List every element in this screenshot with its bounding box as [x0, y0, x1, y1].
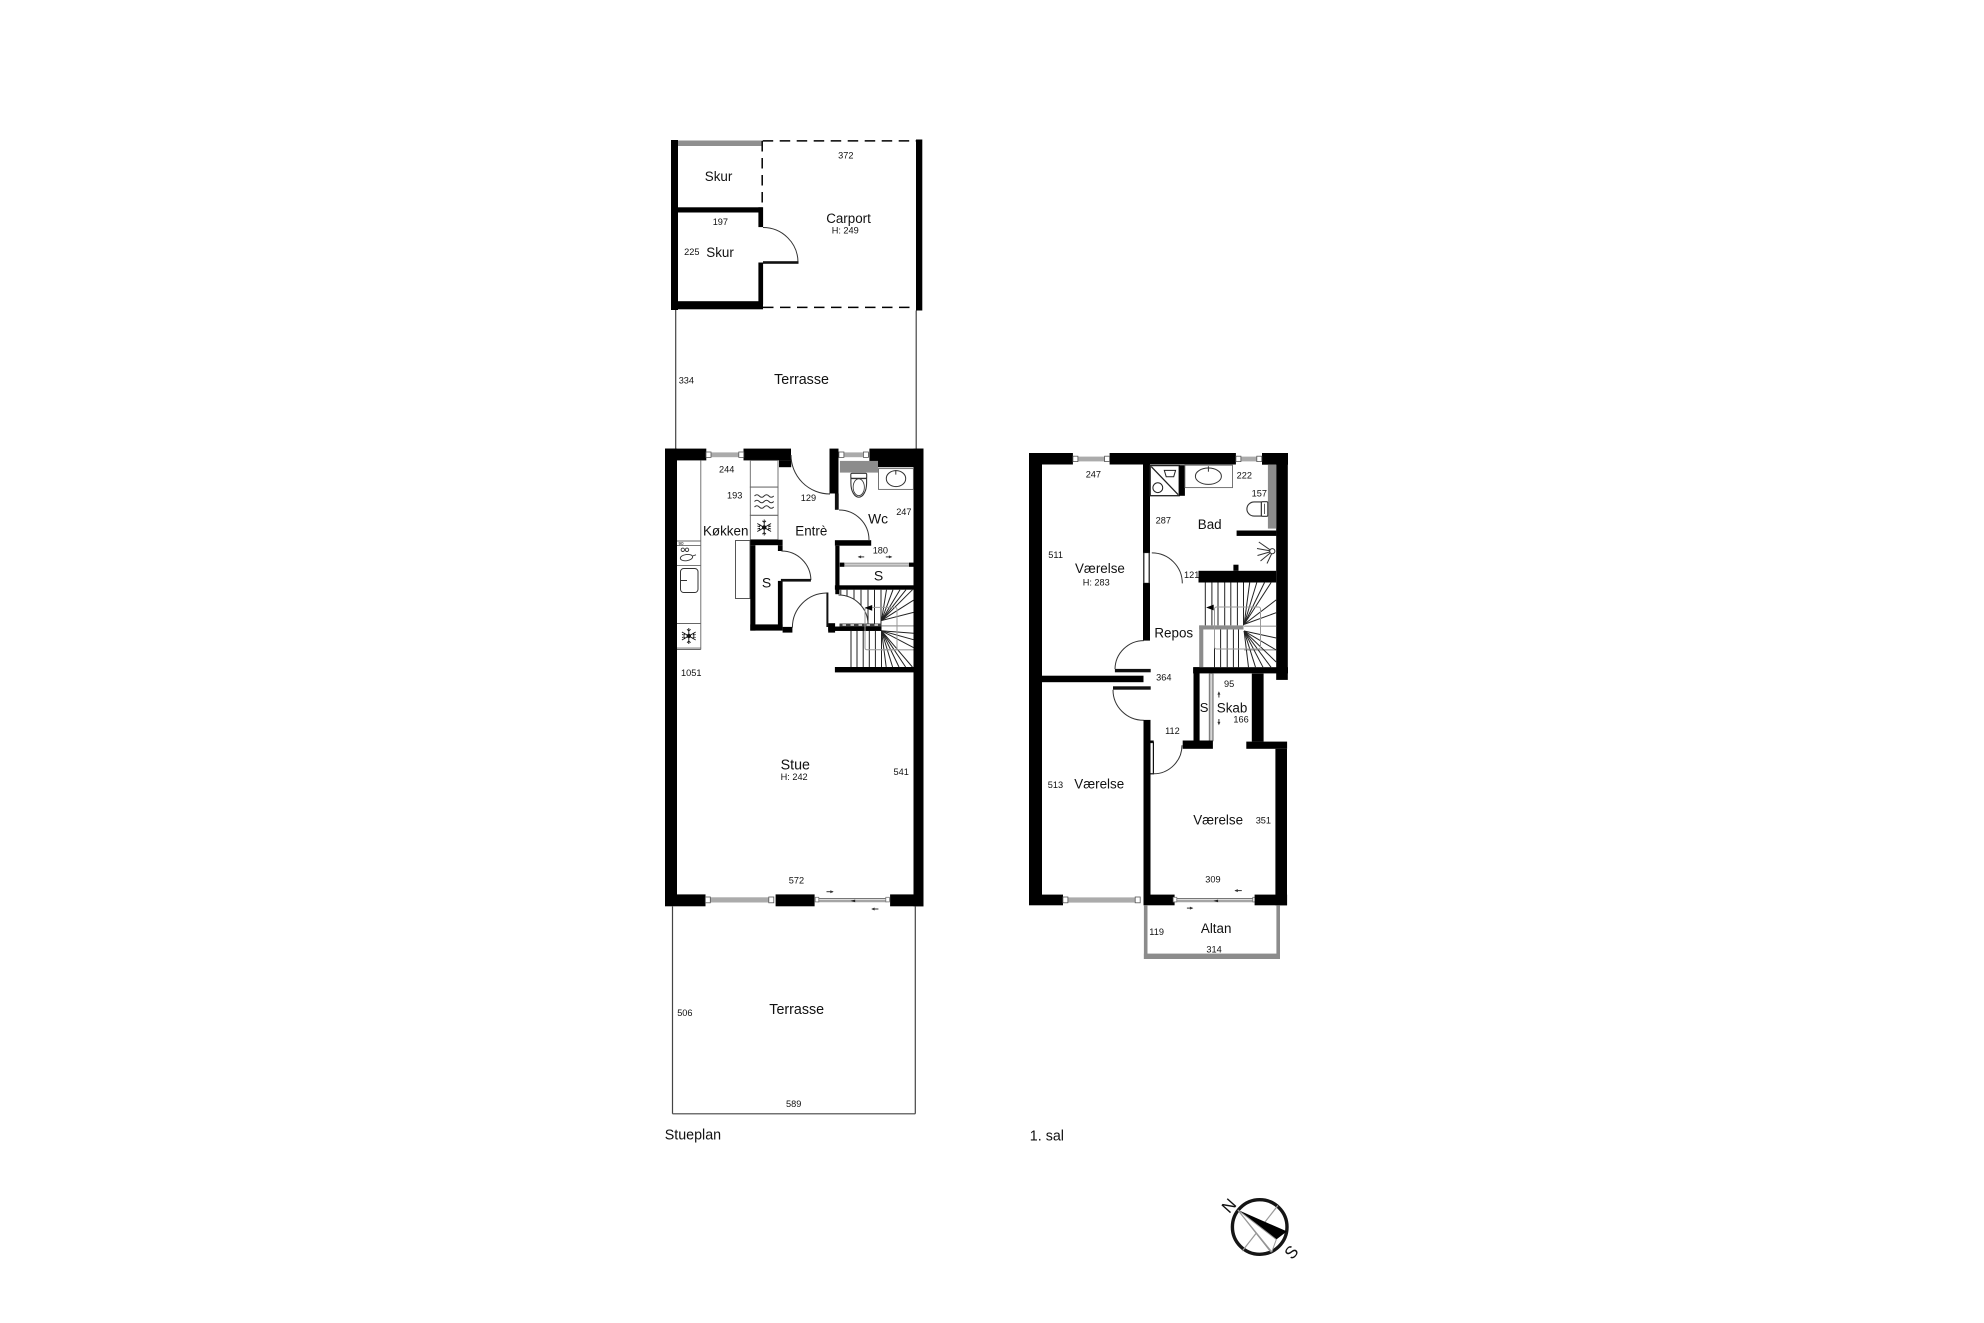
svg-text:247: 247 [1086, 470, 1101, 480]
svg-text:Værelse: Værelse [1075, 561, 1125, 576]
svg-text:S: S [1200, 700, 1209, 715]
svg-text:247: 247 [896, 507, 911, 517]
svg-text:372: 372 [838, 151, 853, 161]
svg-text:193: 193 [727, 491, 742, 501]
svg-text:334: 334 [679, 376, 694, 386]
svg-text:Entrè: Entrè [795, 524, 827, 539]
svg-text:513: 513 [1048, 780, 1063, 790]
svg-text:H: 249: H: 249 [832, 225, 859, 235]
svg-text:119: 119 [1149, 927, 1164, 937]
svg-text:H: 242: H: 242 [781, 772, 808, 782]
svg-text:Altan: Altan [1201, 921, 1232, 936]
svg-text:Værelse: Værelse [1074, 777, 1124, 792]
svg-text:541: 541 [894, 767, 909, 777]
svg-text:Carport: Carport [826, 211, 871, 226]
svg-text:314: 314 [1206, 945, 1221, 955]
svg-text:Repos: Repos [1154, 626, 1193, 641]
svg-text:287: 287 [1156, 516, 1171, 526]
svg-text:Skab: Skab [1217, 701, 1248, 716]
svg-text:112: 112 [1165, 726, 1180, 736]
svg-text:Skur: Skur [706, 245, 734, 260]
svg-text:1. sal: 1. sal [1030, 1128, 1064, 1144]
svg-text:Stueplan: Stueplan [665, 1127, 721, 1143]
svg-text:511: 511 [1048, 550, 1063, 560]
svg-text:244: 244 [719, 465, 734, 475]
svg-text:Wc: Wc [868, 512, 888, 527]
svg-text:Bad: Bad [1198, 517, 1222, 532]
svg-text:Køkken: Køkken [703, 524, 748, 539]
svg-text:225: 225 [684, 247, 699, 257]
svg-text:90: 90 [679, 541, 685, 546]
svg-text:95: 95 [1224, 679, 1234, 689]
svg-text:222: 222 [1237, 471, 1252, 481]
svg-text:572: 572 [789, 875, 804, 885]
svg-text:Skur: Skur [705, 169, 733, 184]
svg-text:351: 351 [1256, 815, 1271, 825]
svg-text:364: 364 [1156, 673, 1171, 683]
svg-text:1051: 1051 [681, 668, 701, 678]
svg-text:180: 180 [873, 545, 888, 555]
svg-text:Terrasse: Terrasse [769, 1002, 824, 1018]
svg-text:121: 121 [1184, 570, 1199, 580]
svg-text:S: S [762, 575, 771, 591]
svg-text:589: 589 [786, 1099, 801, 1109]
svg-text:S: S [874, 568, 883, 584]
svg-text:197: 197 [713, 217, 728, 227]
svg-text:166: 166 [1233, 715, 1248, 725]
svg-text:506: 506 [677, 1008, 692, 1018]
svg-text:Terrasse: Terrasse [774, 372, 829, 388]
svg-text:129: 129 [801, 493, 816, 503]
svg-text:157: 157 [1252, 488, 1267, 498]
svg-text:Værelse: Værelse [1193, 812, 1243, 827]
svg-text:309: 309 [1205, 875, 1220, 885]
svg-text:H: 283: H: 283 [1083, 578, 1110, 588]
